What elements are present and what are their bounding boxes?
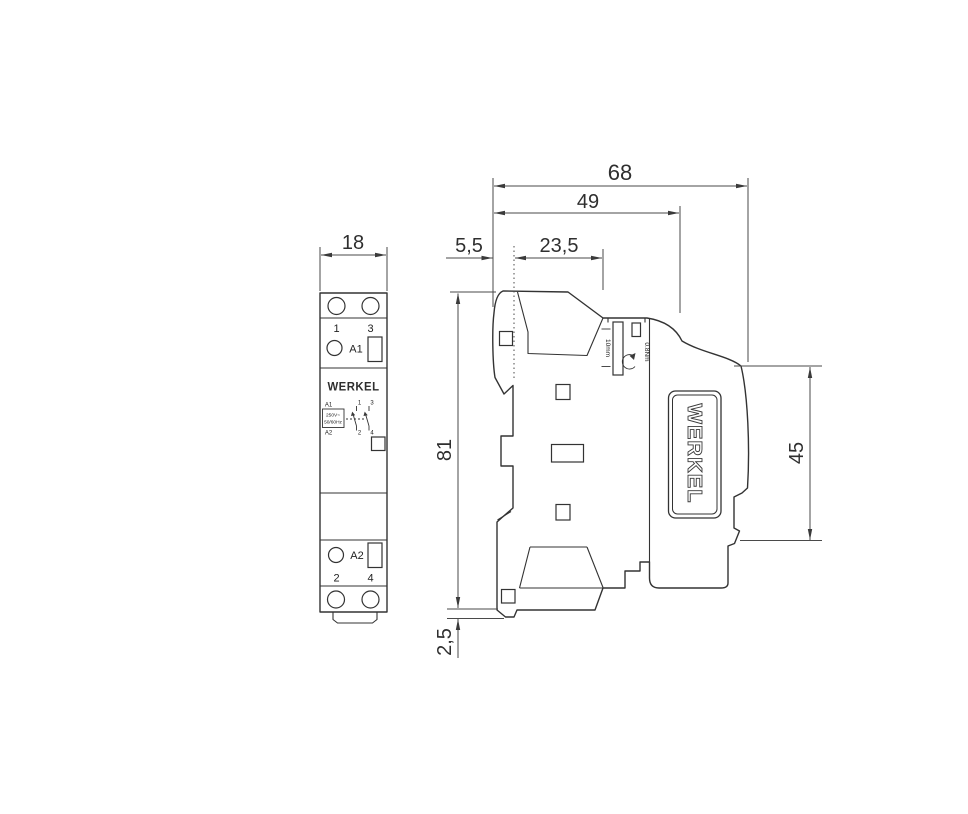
- indicator-window-top: [368, 337, 382, 362]
- dim-5-5-label: 5,5: [455, 235, 483, 257]
- side-hole-lower: [556, 505, 570, 521]
- dim-81-label: 81: [434, 439, 456, 461]
- side-hole-upper: [556, 385, 570, 400]
- screw-terminal-bottom-right: [362, 591, 379, 608]
- dim-45-label: 45: [786, 442, 808, 464]
- schematic-frequency: 50/60Hz: [324, 420, 342, 426]
- front-flap-hole-bottom: [502, 590, 516, 604]
- schematic-a1: A1: [325, 403, 333, 409]
- front-view: 18 1 3 A1 WERKEL A1 250V~ 50/60Hz A2 1 3…: [320, 232, 387, 623]
- din-clip-tab: [333, 612, 377, 623]
- terminal-label-3: 3: [367, 323, 373, 335]
- dim-2-5-label: 2,5: [434, 628, 456, 656]
- screw-terminal-bottom-left: [328, 591, 345, 608]
- terminal-label-4: 4: [367, 573, 373, 585]
- schematic-switch-box: [372, 437, 386, 451]
- technical-drawing-page: 18 1 3 A1 WERKEL A1 250V~ 50/60Hz A2 1 3…: [0, 0, 968, 814]
- coil-label-a2: A2: [350, 550, 363, 562]
- torque-label: 0.8Nm: [643, 342, 650, 361]
- front-flap-hole-top: [500, 332, 513, 346]
- coil-terminal-a2-hole: [329, 548, 344, 563]
- coil-terminal-a1-hole: [327, 341, 342, 356]
- contactor-dimension-drawing: 18 1 3 A1 WERKEL A1 250V~ 50/60Hz A2 1 3…: [0, 0, 968, 814]
- terminal-label-2: 2: [333, 573, 339, 585]
- dim-23-5-label: 23,5: [540, 235, 579, 257]
- terminal-label-1: 1: [333, 323, 339, 335]
- side-hole-middle: [552, 445, 584, 463]
- front-width-dimension: 18: [320, 232, 387, 291]
- coil-label-a1: A1: [349, 344, 362, 356]
- arrowhead-left: [321, 253, 332, 258]
- brand-logo-front: WERKEL: [328, 380, 380, 394]
- dim-68-label: 68: [608, 160, 632, 185]
- dim-49-label: 49: [577, 191, 599, 213]
- dim-18-label: 18: [342, 232, 364, 254]
- screw-terminal-top-right: [362, 298, 379, 315]
- strip-gauge-label: 10mm: [604, 339, 611, 357]
- arrowhead-right: [375, 253, 386, 258]
- brand-logo-side: WERKEL: [683, 404, 705, 504]
- strip-gauge-slot: [613, 322, 623, 375]
- indicator-window-bottom: [368, 543, 382, 568]
- screwdriver-slot: [632, 323, 641, 337]
- side-view: 10mm 0.8Nm WERKEL: [493, 246, 749, 617]
- schematic-a2: A2: [325, 431, 333, 437]
- schematic-voltage: 250V~: [326, 413, 340, 419]
- screw-terminal-top-left: [328, 298, 345, 315]
